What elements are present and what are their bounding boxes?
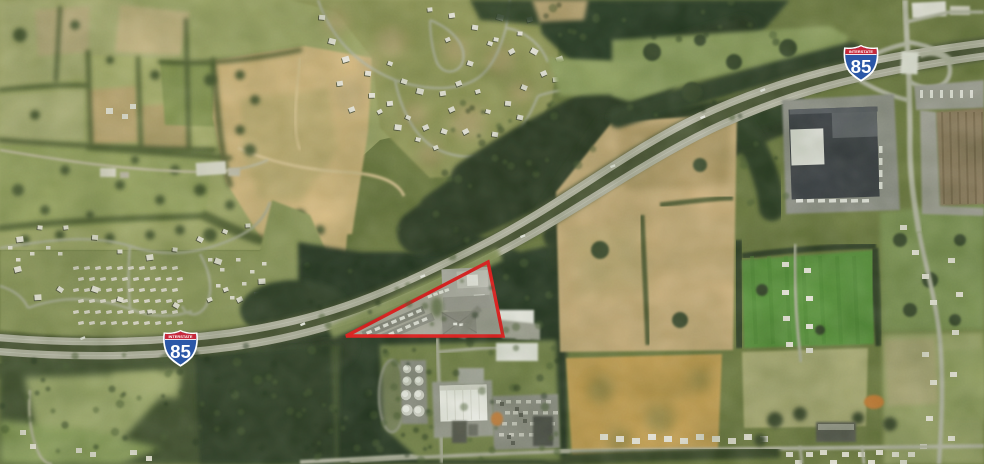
svg-text:INTERSTATE: INTERSTATE [168,334,192,339]
svg-text:85: 85 [851,56,872,77]
svg-text:85: 85 [170,341,191,362]
svg-text:INTERSTATE: INTERSTATE [849,49,873,54]
